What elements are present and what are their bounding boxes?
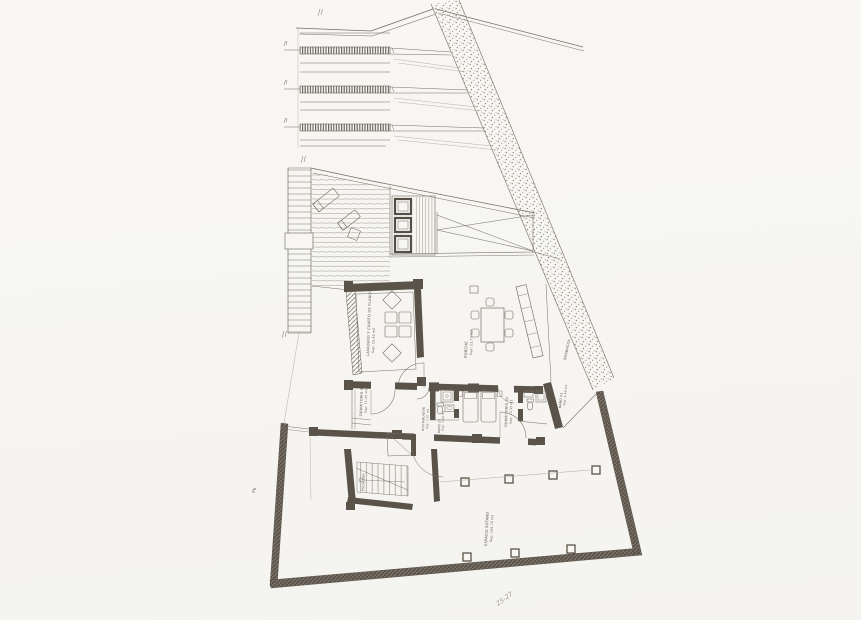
handwritten-note: 25-27 <box>494 590 515 608</box>
bathroom-2: BAÑO 02 Sup: 3,60 m2 <box>430 390 459 433</box>
sofa-set <box>383 291 411 362</box>
plot-marker: Pb <box>251 487 257 493</box>
bedroom2-area: Sup: 13,35 m2 <box>509 399 514 424</box>
stair-label: ESCALERA <box>361 473 366 491</box>
scanned-floor-plan-page: LAVADERO Y CUARTO DE PLANCHA Sup: 10,90 … <box>0 0 861 620</box>
bath2-fixtures <box>437 390 454 414</box>
laundry-area: Sup: 10,90 m2 <box>371 328 376 353</box>
basement-area: Sup: 105,76 m2 <box>489 514 494 542</box>
roof-bracing <box>437 212 533 254</box>
planter-strips <box>300 47 390 131</box>
beds <box>458 391 502 422</box>
boundary-walls <box>270 391 642 588</box>
dining-set <box>470 286 513 351</box>
barbecue-label: BARBACOA <box>563 338 571 360</box>
bathroom3-area: Sup: 4,40 m2 <box>562 384 568 405</box>
floor-plan-drawing: LAVADERO Y CUARTO DE PLANCHA Sup: 10,90 … <box>0 0 861 620</box>
porch-living-area: PORCHE Sup: 21,77 m2 BARBACOA <box>383 284 572 382</box>
site-terraces <box>282 9 584 338</box>
bedroom-1: DORMITORIO 01 Sup: 11,15 m2 <box>352 386 371 429</box>
hall-distribuidor: DISTRIBUIDOR Sup: 3,97 m2 <box>421 407 430 431</box>
barbecue-counter <box>516 285 543 358</box>
porch-area: Sup: 21,77 m2 <box>469 330 474 355</box>
pergola-skylights <box>392 196 435 255</box>
basement: ESPACIO SOTANO Sup: 105,76 m2 Pb <box>251 391 642 588</box>
bathroom2-area: Sup: 3,60 m2 <box>441 410 446 431</box>
wall-porch-bedrooms <box>344 380 563 429</box>
porch-label: PORCHE <box>463 341 469 358</box>
boundary-band <box>431 0 614 390</box>
structural-columns <box>461 466 600 561</box>
deck-stair <box>284 168 313 423</box>
bedroom-2: DORMITORIO 02 Sup: 13,35 m2 <box>458 391 513 427</box>
bedroom1-area: Sup: 11,15 m2 <box>364 388 369 413</box>
hall-area: Sup: 3,97 m2 <box>425 408 430 429</box>
